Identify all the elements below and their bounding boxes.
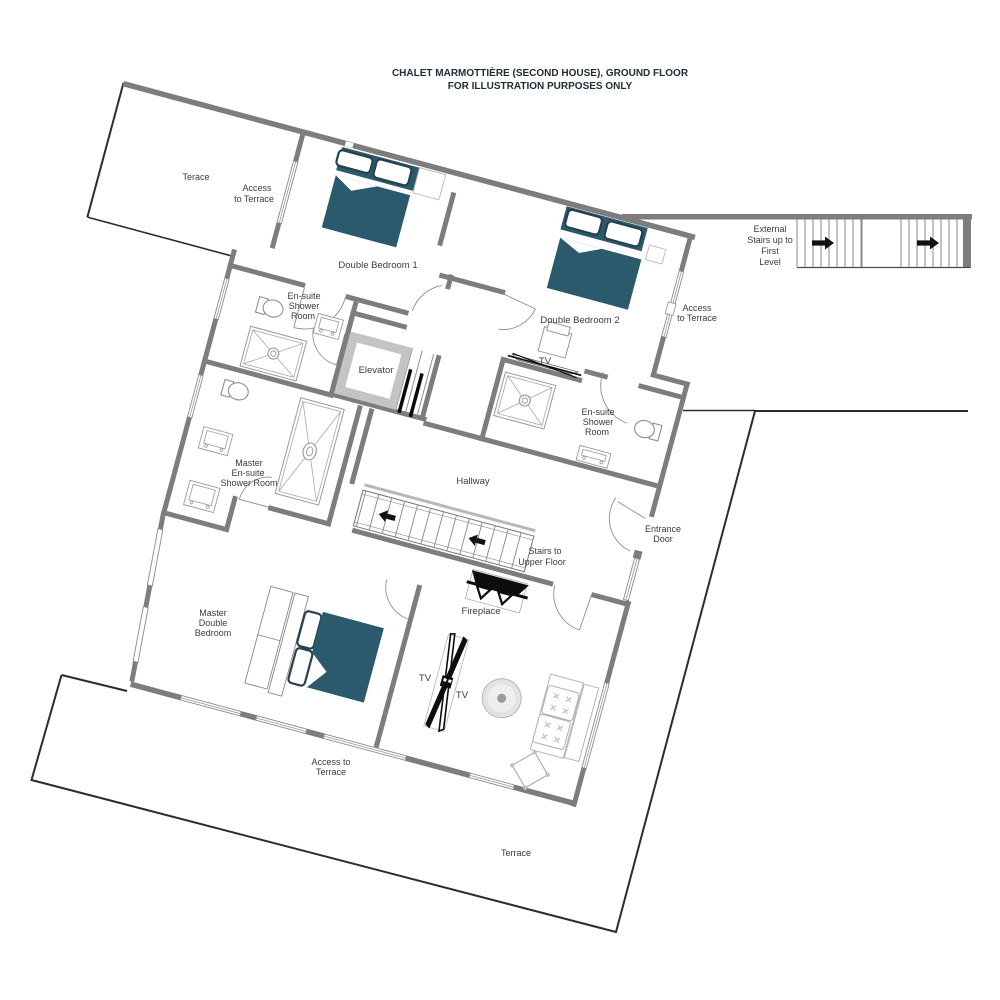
- svg-text:to Terrace: to Terrace: [677, 313, 717, 323]
- svg-text:Master: Master: [199, 608, 227, 618]
- svg-text:Master: Master: [235, 458, 263, 468]
- svg-text:Upper Floor: Upper Floor: [518, 557, 566, 567]
- svg-text:to Terrace: to Terrace: [234, 194, 274, 204]
- svg-text:TV: TV: [539, 356, 552, 367]
- svg-text:Terrace: Terrace: [316, 767, 346, 777]
- svg-text:Terace: Terace: [182, 172, 209, 182]
- svg-text:Shower: Shower: [289, 301, 320, 311]
- svg-text:Access to: Access to: [311, 757, 350, 767]
- svg-text:External: External: [753, 224, 786, 234]
- svg-text:Hallway: Hallway: [456, 476, 490, 487]
- svg-text:Elevator: Elevator: [359, 365, 394, 376]
- svg-text:Door: Door: [653, 534, 673, 544]
- svg-text:Stairs to: Stairs to: [528, 546, 561, 556]
- svg-text:Shower: Shower: [583, 417, 614, 427]
- svg-text:Double: Double: [199, 618, 228, 628]
- svg-text:En-suite: En-suite: [581, 407, 614, 417]
- svg-text:First: First: [761, 246, 779, 256]
- svg-text:FOR ILLUSTRATION PURPOSES ONLY: FOR ILLUSTRATION PURPOSES ONLY: [448, 81, 633, 92]
- svg-text:En-suite: En-suite: [287, 291, 320, 301]
- svg-text:Terrace: Terrace: [501, 848, 531, 858]
- svg-text:Level: Level: [759, 257, 781, 267]
- svg-text:Double Bedroom 2: Double Bedroom 2: [540, 315, 619, 326]
- svg-text:CHALET MARMOTTIÈRE (SECOND HOU: CHALET MARMOTTIÈRE (SECOND HOUSE), GROUN…: [392, 66, 689, 79]
- svg-text:TV: TV: [456, 690, 469, 701]
- svg-text:Access: Access: [682, 303, 712, 313]
- svg-text:Room: Room: [291, 311, 315, 321]
- svg-text:Fireplace: Fireplace: [461, 606, 500, 617]
- svg-text:En-suite: En-suite: [231, 468, 264, 478]
- svg-text:Bedroom: Bedroom: [195, 628, 232, 638]
- svg-text:Room: Room: [585, 427, 609, 437]
- svg-text:Stairs up to: Stairs up to: [747, 235, 793, 245]
- svg-text:Entrance: Entrance: [645, 524, 681, 534]
- svg-text:Shower Room: Shower Room: [220, 478, 277, 488]
- svg-text:Access: Access: [242, 183, 272, 193]
- svg-text:Double Bedroom 1: Double Bedroom 1: [338, 260, 417, 271]
- svg-text:TV: TV: [419, 673, 432, 684]
